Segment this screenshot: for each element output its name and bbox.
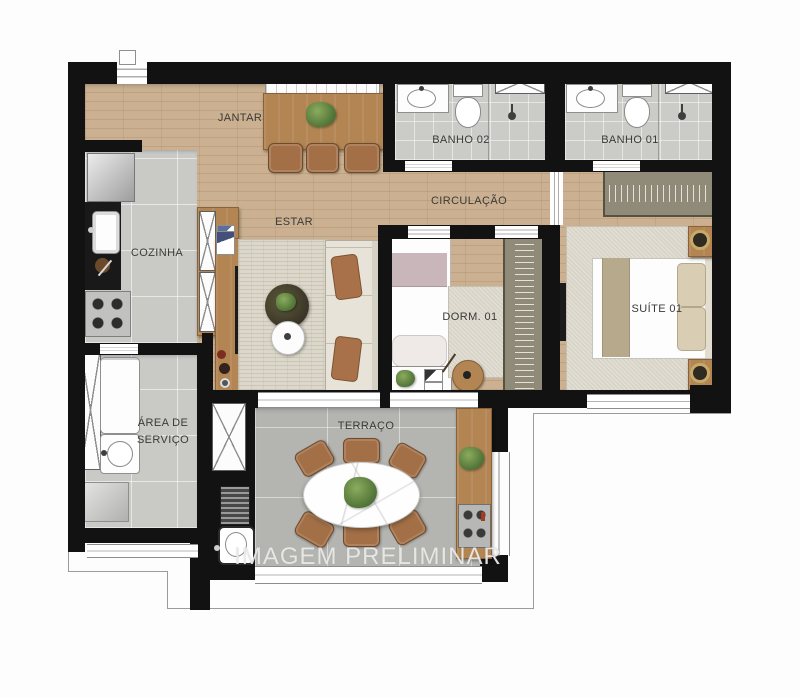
door-service bbox=[100, 344, 138, 354]
window-dorm-terrace bbox=[390, 392, 478, 408]
sink-basin bbox=[576, 89, 605, 108]
louver-vent bbox=[220, 486, 250, 525]
room-label-area-servico: ÁREA DE SERVIÇO bbox=[129, 415, 197, 449]
wall-living-dorm bbox=[378, 225, 392, 408]
fridge bbox=[87, 153, 135, 202]
lamp-icon bbox=[690, 230, 710, 250]
window-living-terrace bbox=[258, 392, 380, 408]
stove bbox=[85, 291, 131, 337]
magazine bbox=[216, 231, 235, 255]
door-suite bbox=[550, 172, 563, 225]
dining-chair bbox=[344, 143, 380, 173]
bench-plant-icon bbox=[396, 370, 415, 387]
dining-chair bbox=[268, 143, 303, 173]
room-label-suite01: SUÍTE 01 bbox=[632, 303, 683, 315]
wall-suite-corner bbox=[690, 385, 731, 413]
shower-stem bbox=[511, 104, 513, 113]
vase bbox=[220, 378, 230, 388]
magazine bbox=[424, 369, 443, 382]
shower-stem bbox=[681, 104, 683, 113]
dorm-wardrobe bbox=[503, 235, 545, 396]
faucet-icon bbox=[214, 545, 220, 551]
door-bath02 bbox=[405, 161, 452, 171]
room-label-banho02: BANHO 02 bbox=[432, 134, 490, 146]
grill-knob bbox=[481, 512, 485, 521]
shower-head-icon bbox=[678, 112, 686, 120]
window-suite bbox=[587, 394, 690, 409]
outline-suite-h bbox=[533, 413, 731, 414]
outline-step-v bbox=[167, 571, 168, 609]
shower-divider-bath01 bbox=[658, 84, 659, 160]
door-dorm01-closet bbox=[495, 226, 538, 238]
outline-step-h bbox=[68, 571, 168, 572]
bed-pillow bbox=[677, 263, 706, 307]
faucet-icon bbox=[419, 86, 424, 91]
outline-left bbox=[68, 552, 69, 572]
vase bbox=[219, 363, 230, 374]
wall-left bbox=[68, 62, 85, 552]
duct-shaft bbox=[212, 403, 246, 471]
toilet-tank bbox=[622, 84, 652, 97]
entry-door bbox=[117, 62, 147, 84]
outline-bottom bbox=[167, 608, 534, 609]
wall-dining-bath bbox=[383, 62, 395, 172]
water-heater bbox=[84, 482, 129, 522]
toilet-tank bbox=[453, 84, 483, 97]
watermark-text: IMAGEM PRELIMINAR bbox=[234, 543, 502, 571]
room-label-estar: ESTAR bbox=[275, 216, 313, 228]
wardrobe-hangers bbox=[609, 185, 708, 202]
outline-right-v bbox=[533, 413, 534, 609]
side-table-decor bbox=[463, 371, 471, 379]
terrace-chair bbox=[343, 438, 380, 464]
toilet-bowl bbox=[624, 97, 650, 128]
decor-item bbox=[284, 333, 291, 340]
room-label-banho01: BANHO 01 bbox=[601, 134, 659, 146]
door-bath01 bbox=[593, 161, 640, 171]
wardrobe-hangers bbox=[515, 242, 534, 390]
wall-top bbox=[68, 62, 731, 84]
vase bbox=[217, 350, 226, 359]
entry-door-leaf bbox=[119, 50, 136, 65]
wall-kitchen-top bbox=[85, 140, 142, 152]
wall-dorm-suite bbox=[542, 225, 560, 408]
faucet-icon bbox=[88, 227, 94, 233]
door-dorm01 bbox=[408, 226, 450, 238]
grill-station bbox=[458, 504, 491, 548]
wall-right bbox=[712, 62, 731, 410]
bed-pillow bbox=[392, 335, 447, 367]
faucet-icon bbox=[588, 86, 593, 91]
wall-service-bottom bbox=[68, 528, 200, 543]
window-service bbox=[87, 544, 198, 558]
room-label-dorm01: DORM. 01 bbox=[442, 311, 497, 323]
sofa-pillow bbox=[330, 336, 362, 383]
wall-between-baths bbox=[545, 62, 565, 172]
island-cabinet bbox=[199, 211, 216, 271]
shower-head-icon bbox=[508, 112, 516, 120]
toilet-bowl bbox=[455, 97, 481, 128]
floor-plan: JANTAR BANHO 02 BANHO 01 CIRCULAÇÃO ESTA… bbox=[0, 0, 800, 697]
faucet-icon bbox=[101, 450, 107, 456]
kitchen-sink bbox=[92, 211, 120, 254]
room-label-terraco: TERRAÇO bbox=[338, 420, 395, 432]
room-label-circulacao: CIRCULAÇÃO bbox=[431, 195, 507, 207]
suite-wardrobe bbox=[603, 170, 715, 217]
dining-chair bbox=[306, 143, 339, 173]
wall-service-right bbox=[197, 343, 208, 543]
island-cabinet bbox=[199, 272, 216, 332]
sink-basin bbox=[407, 89, 436, 108]
bed-runner bbox=[602, 258, 630, 357]
tv-icon bbox=[560, 283, 566, 341]
room-label-cozinha: COZINHA bbox=[131, 247, 183, 259]
shower-divider-bath02 bbox=[488, 84, 489, 160]
bed-blanket bbox=[390, 253, 447, 287]
room-label-jantar: JANTAR bbox=[218, 112, 262, 124]
lamp-icon bbox=[690, 363, 710, 383]
